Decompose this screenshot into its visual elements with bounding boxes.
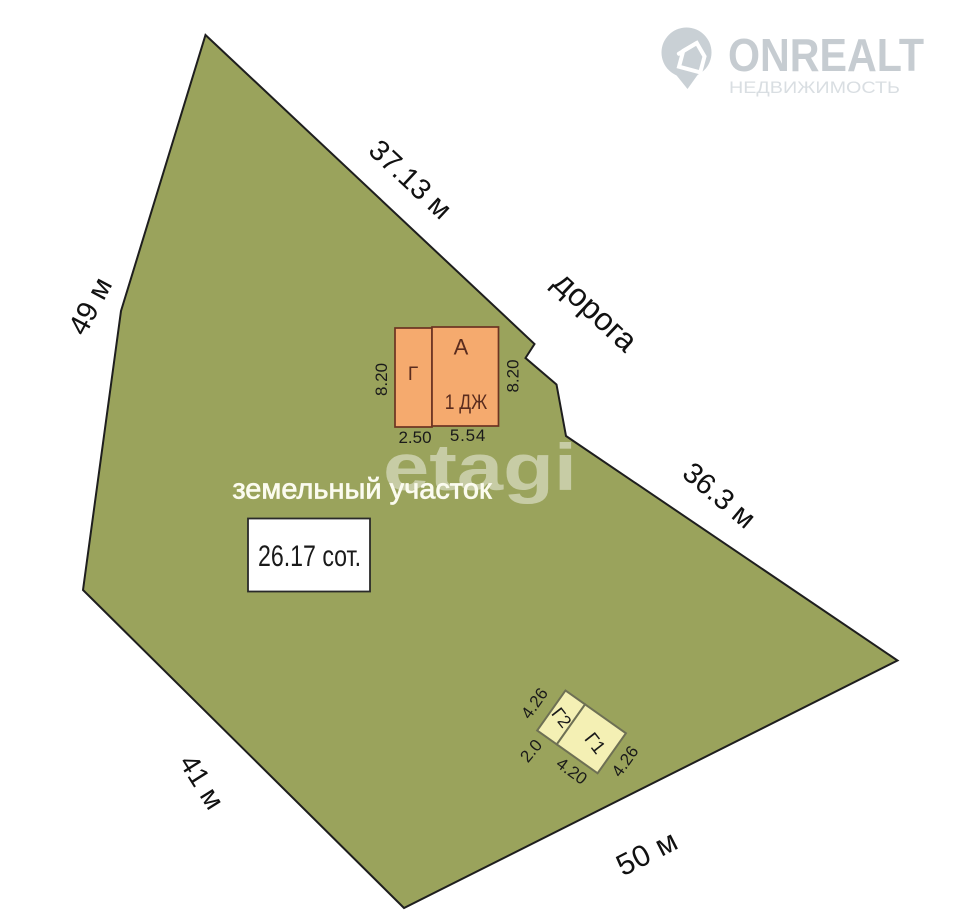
svg-text:НЕДВИЖИМОСТЬ: НЕДВИЖИМОСТЬ [729,78,900,97]
svg-text:ONREALT: ONREALT [728,29,924,81]
svg-text:2.50: 2.50 [398,428,431,447]
svg-text:8.20: 8.20 [503,359,522,392]
svg-text:26.17 сот.: 26.17 сот. [258,540,361,573]
svg-text:8.20: 8.20 [372,363,391,396]
svg-text:Г: Г [408,364,418,385]
svg-text:земельный участок: земельный участок [232,474,492,506]
svg-text:А: А [454,334,469,359]
svg-text:5.54: 5.54 [450,426,486,445]
svg-text:1 ДЖ: 1 ДЖ [445,391,488,414]
